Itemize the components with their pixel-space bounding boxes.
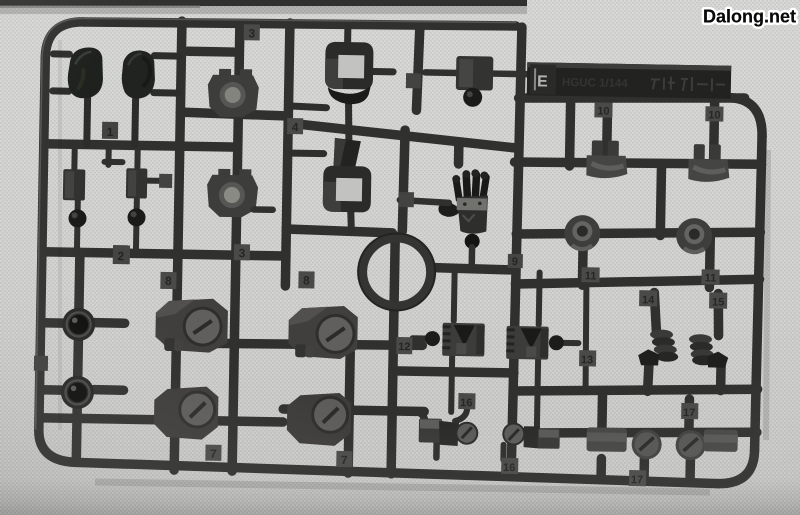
svg-text:Dalong.net: Dalong.net (703, 7, 796, 27)
